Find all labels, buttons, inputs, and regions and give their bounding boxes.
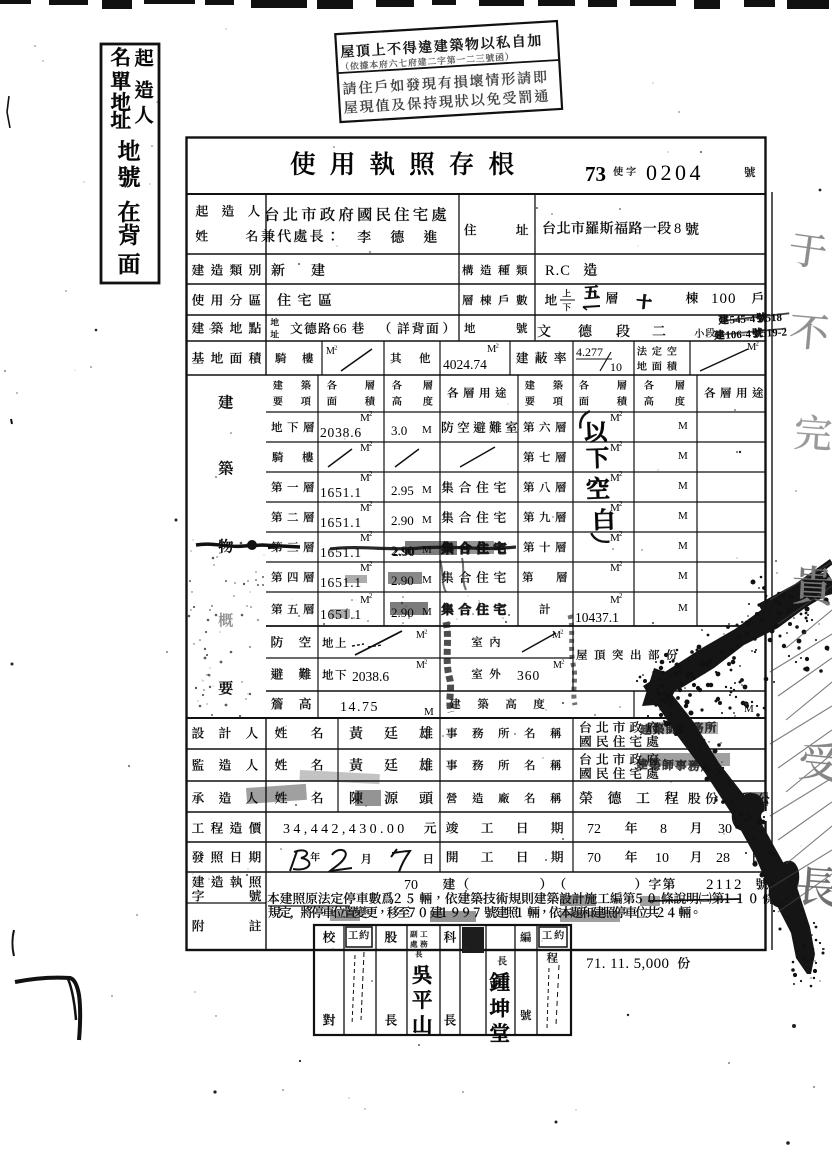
svg-text:72: 72 xyxy=(587,822,601,837)
svg-text:M: M xyxy=(422,574,432,586)
svg-text:2: 2 xyxy=(424,629,427,636)
svg-text:28: 28 xyxy=(716,851,730,866)
svg-text:4.277: 4.277 xyxy=(576,345,603,359)
svg-text:2: 2 xyxy=(369,501,373,508)
svg-text:2: 2 xyxy=(619,441,623,448)
svg-text:2.95: 2.95 xyxy=(391,483,414,498)
svg-text:70: 70 xyxy=(587,851,601,866)
svg-text:2: 2 xyxy=(619,531,623,538)
svg-text:2: 2 xyxy=(369,441,373,448)
svg-text:2: 2 xyxy=(334,345,337,352)
svg-text:8: 8 xyxy=(674,221,681,237)
svg-text:100: 100 xyxy=(711,291,737,307)
svg-text:2: 2 xyxy=(619,561,623,568)
svg-text:2: 2 xyxy=(496,342,499,349)
svg-text:360: 360 xyxy=(517,668,540,683)
svg-text:M: M xyxy=(678,420,688,432)
svg-text:66: 66 xyxy=(333,321,347,336)
svg-text:2.90: 2.90 xyxy=(391,513,414,528)
svg-text:M: M xyxy=(678,480,688,492)
svg-text:M: M xyxy=(422,484,432,496)
svg-text:M: M xyxy=(678,540,688,552)
svg-text:73: 73 xyxy=(585,162,606,186)
svg-text:10437.1: 10437.1 xyxy=(575,610,619,625)
svg-text:M: M xyxy=(678,450,688,462)
svg-text:2: 2 xyxy=(424,659,427,666)
svg-text:106-4: 106-4 xyxy=(725,328,752,341)
svg-text:2: 2 xyxy=(369,531,373,538)
svg-text:M: M xyxy=(422,424,432,436)
svg-text:M: M xyxy=(678,602,688,614)
svg-text:1651.1: 1651.1 xyxy=(320,515,362,530)
svg-text:2: 2 xyxy=(619,593,623,600)
svg-text:2: 2 xyxy=(369,561,373,568)
svg-text:14.75: 14.75 xyxy=(340,700,379,715)
svg-text:3.0: 3.0 xyxy=(391,423,407,438)
svg-text:M: M xyxy=(678,570,688,582)
svg-text:0204: 0204 xyxy=(646,160,704,185)
svg-text:4024.74: 4024.74 xyxy=(443,357,487,372)
svg-text:8: 8 xyxy=(660,822,667,837)
svg-text:10: 10 xyxy=(610,360,622,374)
svg-text:2: 2 xyxy=(561,659,564,666)
svg-text:2: 2 xyxy=(560,629,563,636)
svg-text:34,442,430.00: 34,442,430.00 xyxy=(283,822,408,837)
svg-text:10: 10 xyxy=(655,851,669,866)
svg-text:2112: 2112 xyxy=(706,877,743,893)
svg-text:2: 2 xyxy=(369,593,373,600)
svg-text:71. 11. 5,000: 71. 11. 5,000 xyxy=(586,956,669,972)
svg-text:2: 2 xyxy=(369,411,373,418)
svg-text:30: 30 xyxy=(718,822,732,837)
svg-text:2: 2 xyxy=(619,471,623,478)
svg-text:2: 2 xyxy=(369,471,373,478)
svg-text:M: M xyxy=(678,510,688,522)
svg-text:M: M xyxy=(422,514,432,526)
svg-text:2: 2 xyxy=(756,340,759,347)
svg-text:2: 2 xyxy=(619,411,623,418)
svg-text:2038.6: 2038.6 xyxy=(352,669,389,684)
svg-text:R.C: R.C xyxy=(545,263,571,279)
svg-text:2038.6: 2038.6 xyxy=(320,425,362,440)
svg-text:70: 70 xyxy=(404,878,418,893)
svg-text:1651.1: 1651.1 xyxy=(320,485,362,500)
svg-text:2: 2 xyxy=(619,501,623,508)
svg-text:M: M xyxy=(424,706,434,718)
